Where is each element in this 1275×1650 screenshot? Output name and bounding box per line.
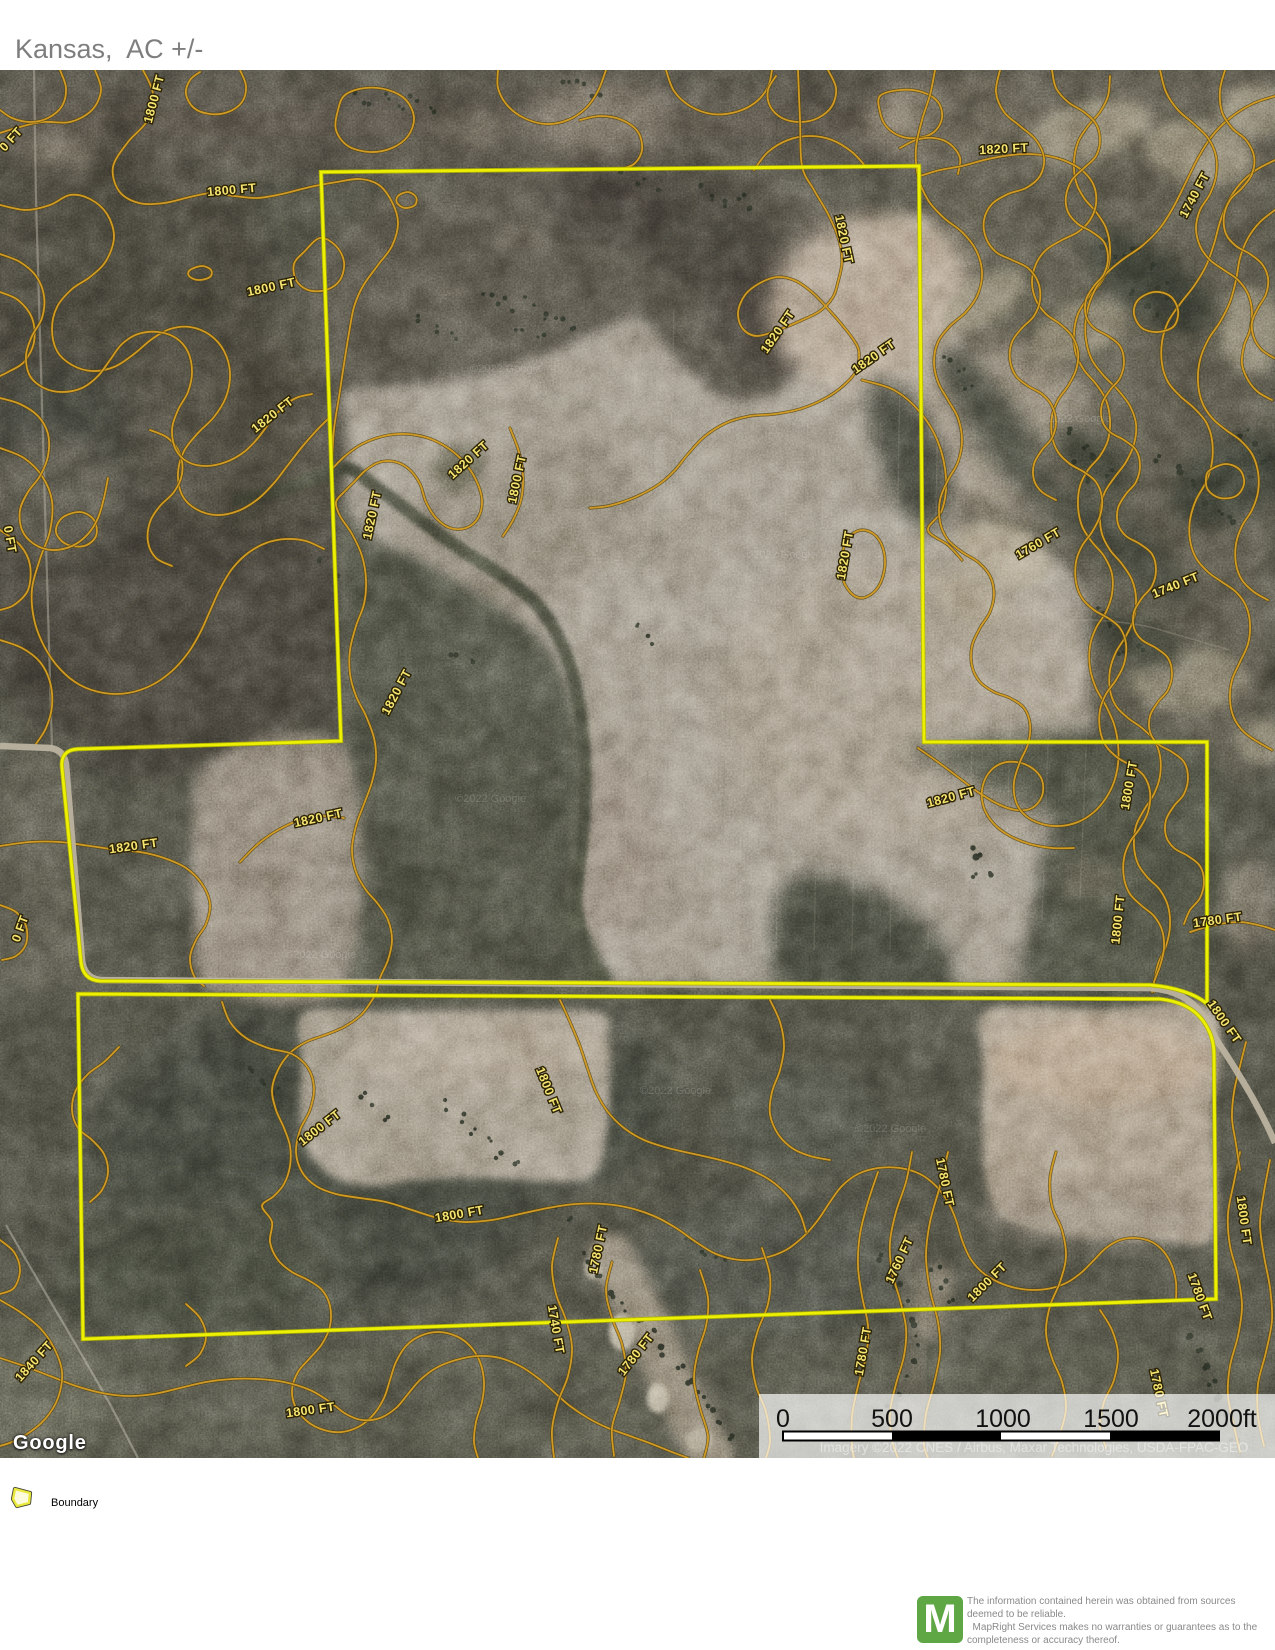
svg-text:©2022 Google: ©2022 Google [285, 949, 356, 961]
svg-text:©2022 Google: ©2022 Google [640, 1085, 711, 1097]
svg-text:©2022 Google: ©2022 Google [1040, 413, 1111, 425]
svg-text:0: 0 [776, 1405, 790, 1433]
svg-text:2000ft: 2000ft [1187, 1405, 1257, 1433]
svg-text:©2022 Google: ©2022 Google [455, 793, 526, 805]
svg-text:500: 500 [871, 1405, 913, 1433]
svg-text:1000: 1000 [975, 1405, 1031, 1433]
svg-text:©2022 Google: ©2022 Google [470, 363, 541, 375]
svg-text:1820 FT: 1820 FT [979, 141, 1029, 158]
svg-text:Google: Google [13, 1432, 87, 1454]
svg-text:©2022 Google: ©2022 Google [745, 549, 816, 561]
svg-text:Imagery ©2022 CNES / Airbus, M: Imagery ©2022 CNES / Airbus, Maxar Techn… [820, 1440, 1249, 1455]
svg-text:1500: 1500 [1083, 1405, 1139, 1433]
svg-text:©2022 Google: ©2022 Google [855, 1123, 926, 1135]
